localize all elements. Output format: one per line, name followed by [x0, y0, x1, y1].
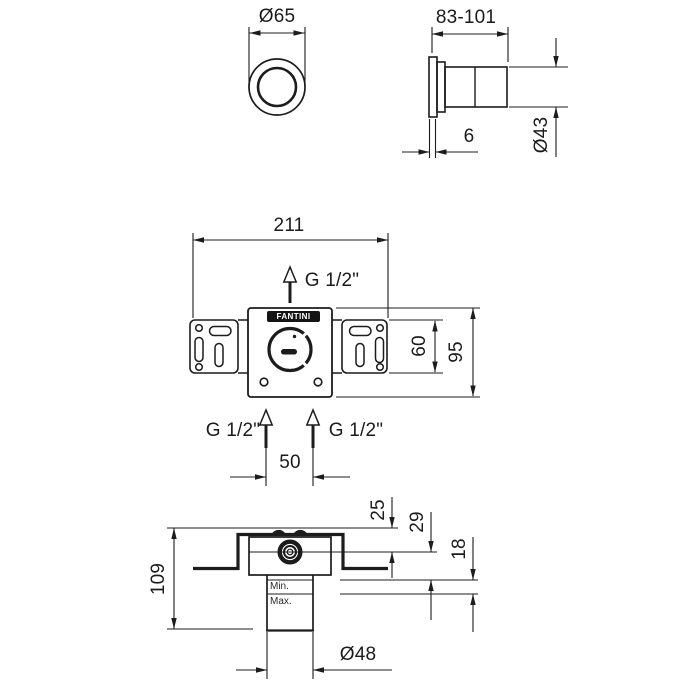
- handle-front-view: [249, 27, 305, 115]
- arrowheads: [171, 517, 475, 673]
- dim-label-handle-diameter: Ø65: [259, 6, 296, 28]
- outlet-arrow-top: [284, 267, 296, 303]
- dim-label-inlet-spacing: 50: [279, 452, 301, 474]
- dim-label-min-to-max: 18: [449, 538, 471, 560]
- dim-label-bracket-height: 60: [409, 335, 431, 357]
- plate-screw-hole-right: [314, 378, 322, 386]
- dimension-lines: [249, 27, 305, 87]
- cartridge-pin: [293, 335, 296, 338]
- body-section-view: [167, 497, 478, 679]
- technical-drawing-page: Ø65 83-101 6 Ø43 211 G 1/2" 60 95 G 1/2"…: [0, 0, 700, 700]
- handle-inner-circle: [258, 68, 296, 106]
- plate-screw-hole-left: [260, 378, 268, 386]
- dim-label-body-diameter: Ø43: [531, 117, 553, 154]
- dim-label-depth-range: 83-101: [436, 7, 496, 29]
- thread-label-top: G 1/2": [305, 270, 359, 292]
- dim-label-plate-height: 95: [446, 341, 468, 363]
- right-bracket-holes: [350, 325, 384, 371]
- cartridge-slot: [281, 349, 297, 355]
- left-bracket-holes: [195, 325, 231, 371]
- thread-label-left: G 1/2": [206, 420, 260, 442]
- dim-label-flange-thickness: 6: [464, 126, 475, 148]
- dim-label-tail-diameter: Ø48: [340, 644, 377, 666]
- inlet-arrow-right: [307, 410, 319, 448]
- handle-body: [445, 67, 507, 107]
- fantini-logo: FANTINI: [267, 311, 320, 322]
- dim-label-axis-to-min: 29: [407, 511, 429, 533]
- dim-label-overall-width: 211: [274, 215, 305, 237]
- spring-clips: [271, 530, 308, 535]
- inlet-arrow-left: [260, 410, 272, 448]
- technical-drawing-canvas: [0, 0, 700, 700]
- max-depth-label: Max.: [270, 596, 292, 607]
- dim-label-overall-depth: 109: [148, 563, 170, 595]
- thread-label-right: G 1/2": [329, 420, 383, 442]
- dim-label-wall-to-axis: 25: [368, 499, 390, 521]
- wall-flange: [429, 57, 437, 117]
- min-depth-label: Min.: [270, 581, 289, 592]
- collar: [437, 62, 445, 112]
